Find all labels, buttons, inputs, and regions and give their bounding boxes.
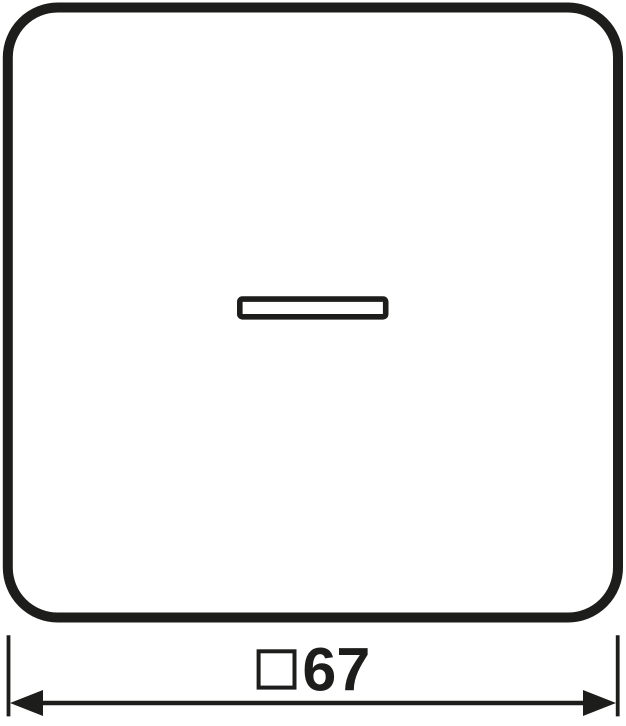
svg-text:67: 67: [302, 636, 370, 704]
